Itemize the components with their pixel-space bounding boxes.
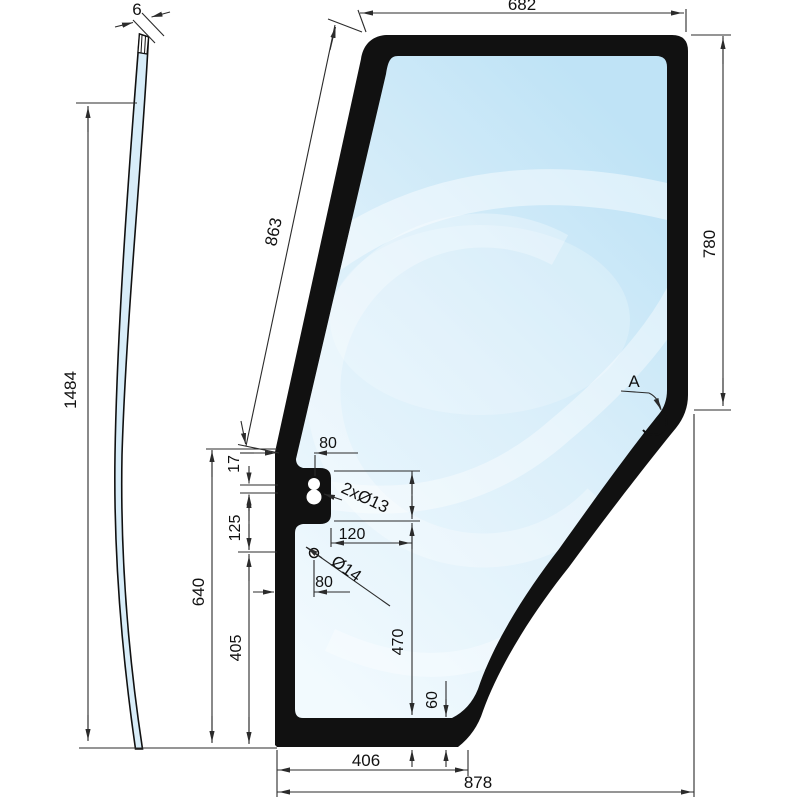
dim-arrow: [330, 27, 336, 50]
dim-bottom-width-label: 406: [352, 751, 380, 770]
dim-left-section-label: 640: [189, 578, 208, 606]
technical-drawing-canvas: 6 1484: [0, 0, 800, 800]
mount-hole-lower: [307, 490, 322, 505]
dim-right-height-label: 780: [700, 230, 719, 258]
detail-a-label: A: [628, 372, 640, 391]
side-glass-top-cap: [138, 34, 149, 54]
extension-line: [328, 19, 362, 32]
dim-mid-section-label: 470: [390, 629, 407, 656]
dim-top-width-label: 682: [508, 0, 536, 14]
side-glass-slab: [115, 34, 149, 749]
watermark-blob: [330, 225, 630, 415]
dim-total-height-label: 1484: [61, 371, 80, 409]
front-view: [240, 35, 700, 747]
dim-hole-span-label: 120: [339, 526, 366, 543]
dim-arrow: [241, 421, 246, 444]
dim-right-height: 780: [691, 35, 731, 410]
dim-hole-group-spacing-label: 125: [227, 515, 244, 542]
dim-round-hole-offset-label: 80: [315, 574, 333, 591]
dim-total-width-label: 878: [464, 773, 492, 792]
dim-arrow: [115, 23, 133, 28]
dim-lower-left-section: 405: [228, 554, 249, 744]
dim-left-edge-label: 863: [261, 216, 285, 248]
dim-lower-left-section-label: 405: [228, 635, 245, 662]
dim-bottom-width: 406: [277, 750, 468, 797]
dim-hole-group-spacing: 125: [227, 495, 277, 552]
dim-bottom-inset-label: 60: [424, 691, 441, 709]
dim-top-width: 682: [358, 0, 686, 32]
dim-thickness-label: 6: [132, 0, 141, 19]
mount-hole-upper: [308, 478, 320, 490]
dim-tab-hole-offset-label: 80: [319, 435, 337, 452]
dim-arrow: [152, 12, 171, 17]
dim-hole-pair-gap-label: 17: [226, 455, 243, 473]
door-glass-drawing: 6 1484: [0, 0, 800, 800]
dim-hole-pair-gap: 17: [226, 455, 278, 511]
